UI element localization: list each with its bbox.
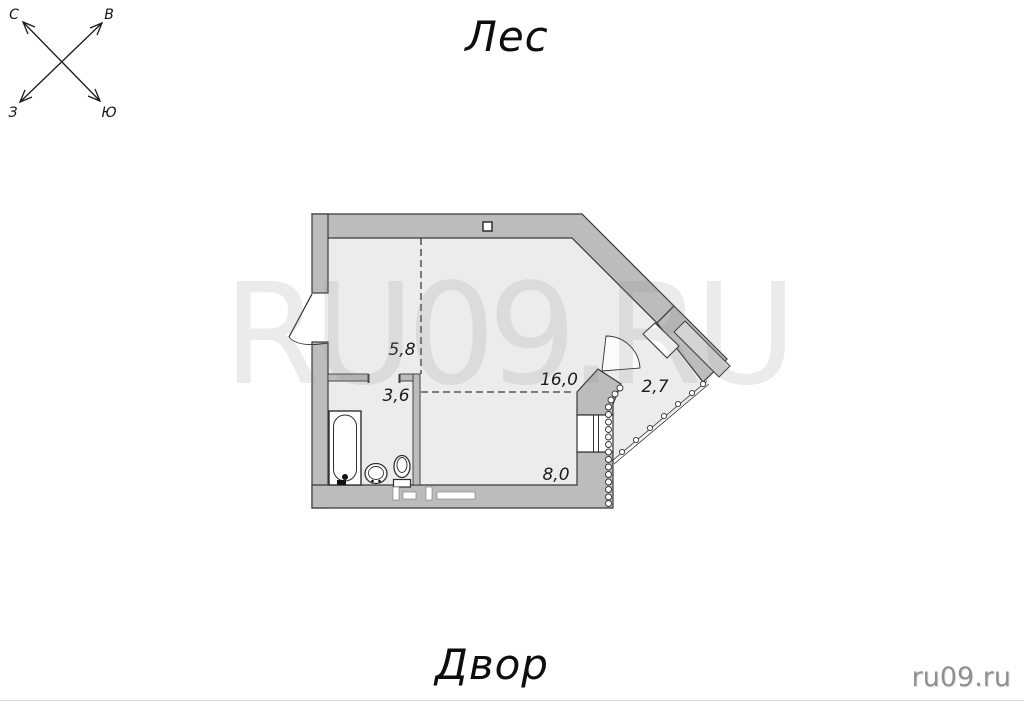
entrance-door-leaf	[289, 294, 312, 337]
compass-east-label: В	[104, 7, 114, 23]
forest-side-label: Лес	[465, 12, 549, 61]
partition-vertical	[413, 374, 420, 485]
partition-top-left	[328, 374, 368, 381]
toilet-icon	[394, 456, 411, 488]
compass-north-label: С	[9, 7, 19, 23]
room-area-label-lower-room: 8,0	[542, 465, 569, 485]
bathtub-icon	[329, 411, 361, 485]
compass-rose: С В З Ю	[9, 7, 117, 121]
riser-opening	[393, 487, 399, 500]
room-area-label-living-room: 16,0	[540, 370, 578, 390]
floor-plan-page: С В З Ю	[0, 0, 1024, 706]
radiator-opening	[437, 492, 475, 499]
vent-shaft-icon	[483, 222, 492, 231]
room-area-label-hallway: 5,8	[388, 340, 415, 360]
page-bottom-divider	[0, 700, 1024, 701]
floor-plan-drawing: С В З Ю	[0, 0, 1024, 706]
compass-west-label: З	[9, 105, 18, 121]
apartment-plan: 5,8 3,6 16,0 2,7 8,0	[289, 214, 730, 508]
riser-opening	[403, 492, 416, 499]
room-area-label-bathroom: 3,6	[382, 386, 409, 406]
compass-south-label: Ю	[101, 105, 116, 121]
room-area-label-balcony: 2,7	[641, 377, 668, 397]
sink-icon	[365, 464, 387, 484]
riser-opening	[426, 487, 432, 500]
partition-top-right	[400, 374, 414, 381]
entrance-door	[289, 294, 328, 345]
outer-wall-left-lower	[312, 342, 328, 508]
door-jamb-left	[368, 374, 370, 383]
door-jamb-right	[399, 374, 401, 383]
entrance-door-swing-arc	[289, 337, 328, 345]
yard-side-label: Двор	[435, 640, 549, 689]
site-logo: ru09.ru	[912, 662, 1011, 693]
outer-wall-left-upper	[312, 214, 328, 293]
